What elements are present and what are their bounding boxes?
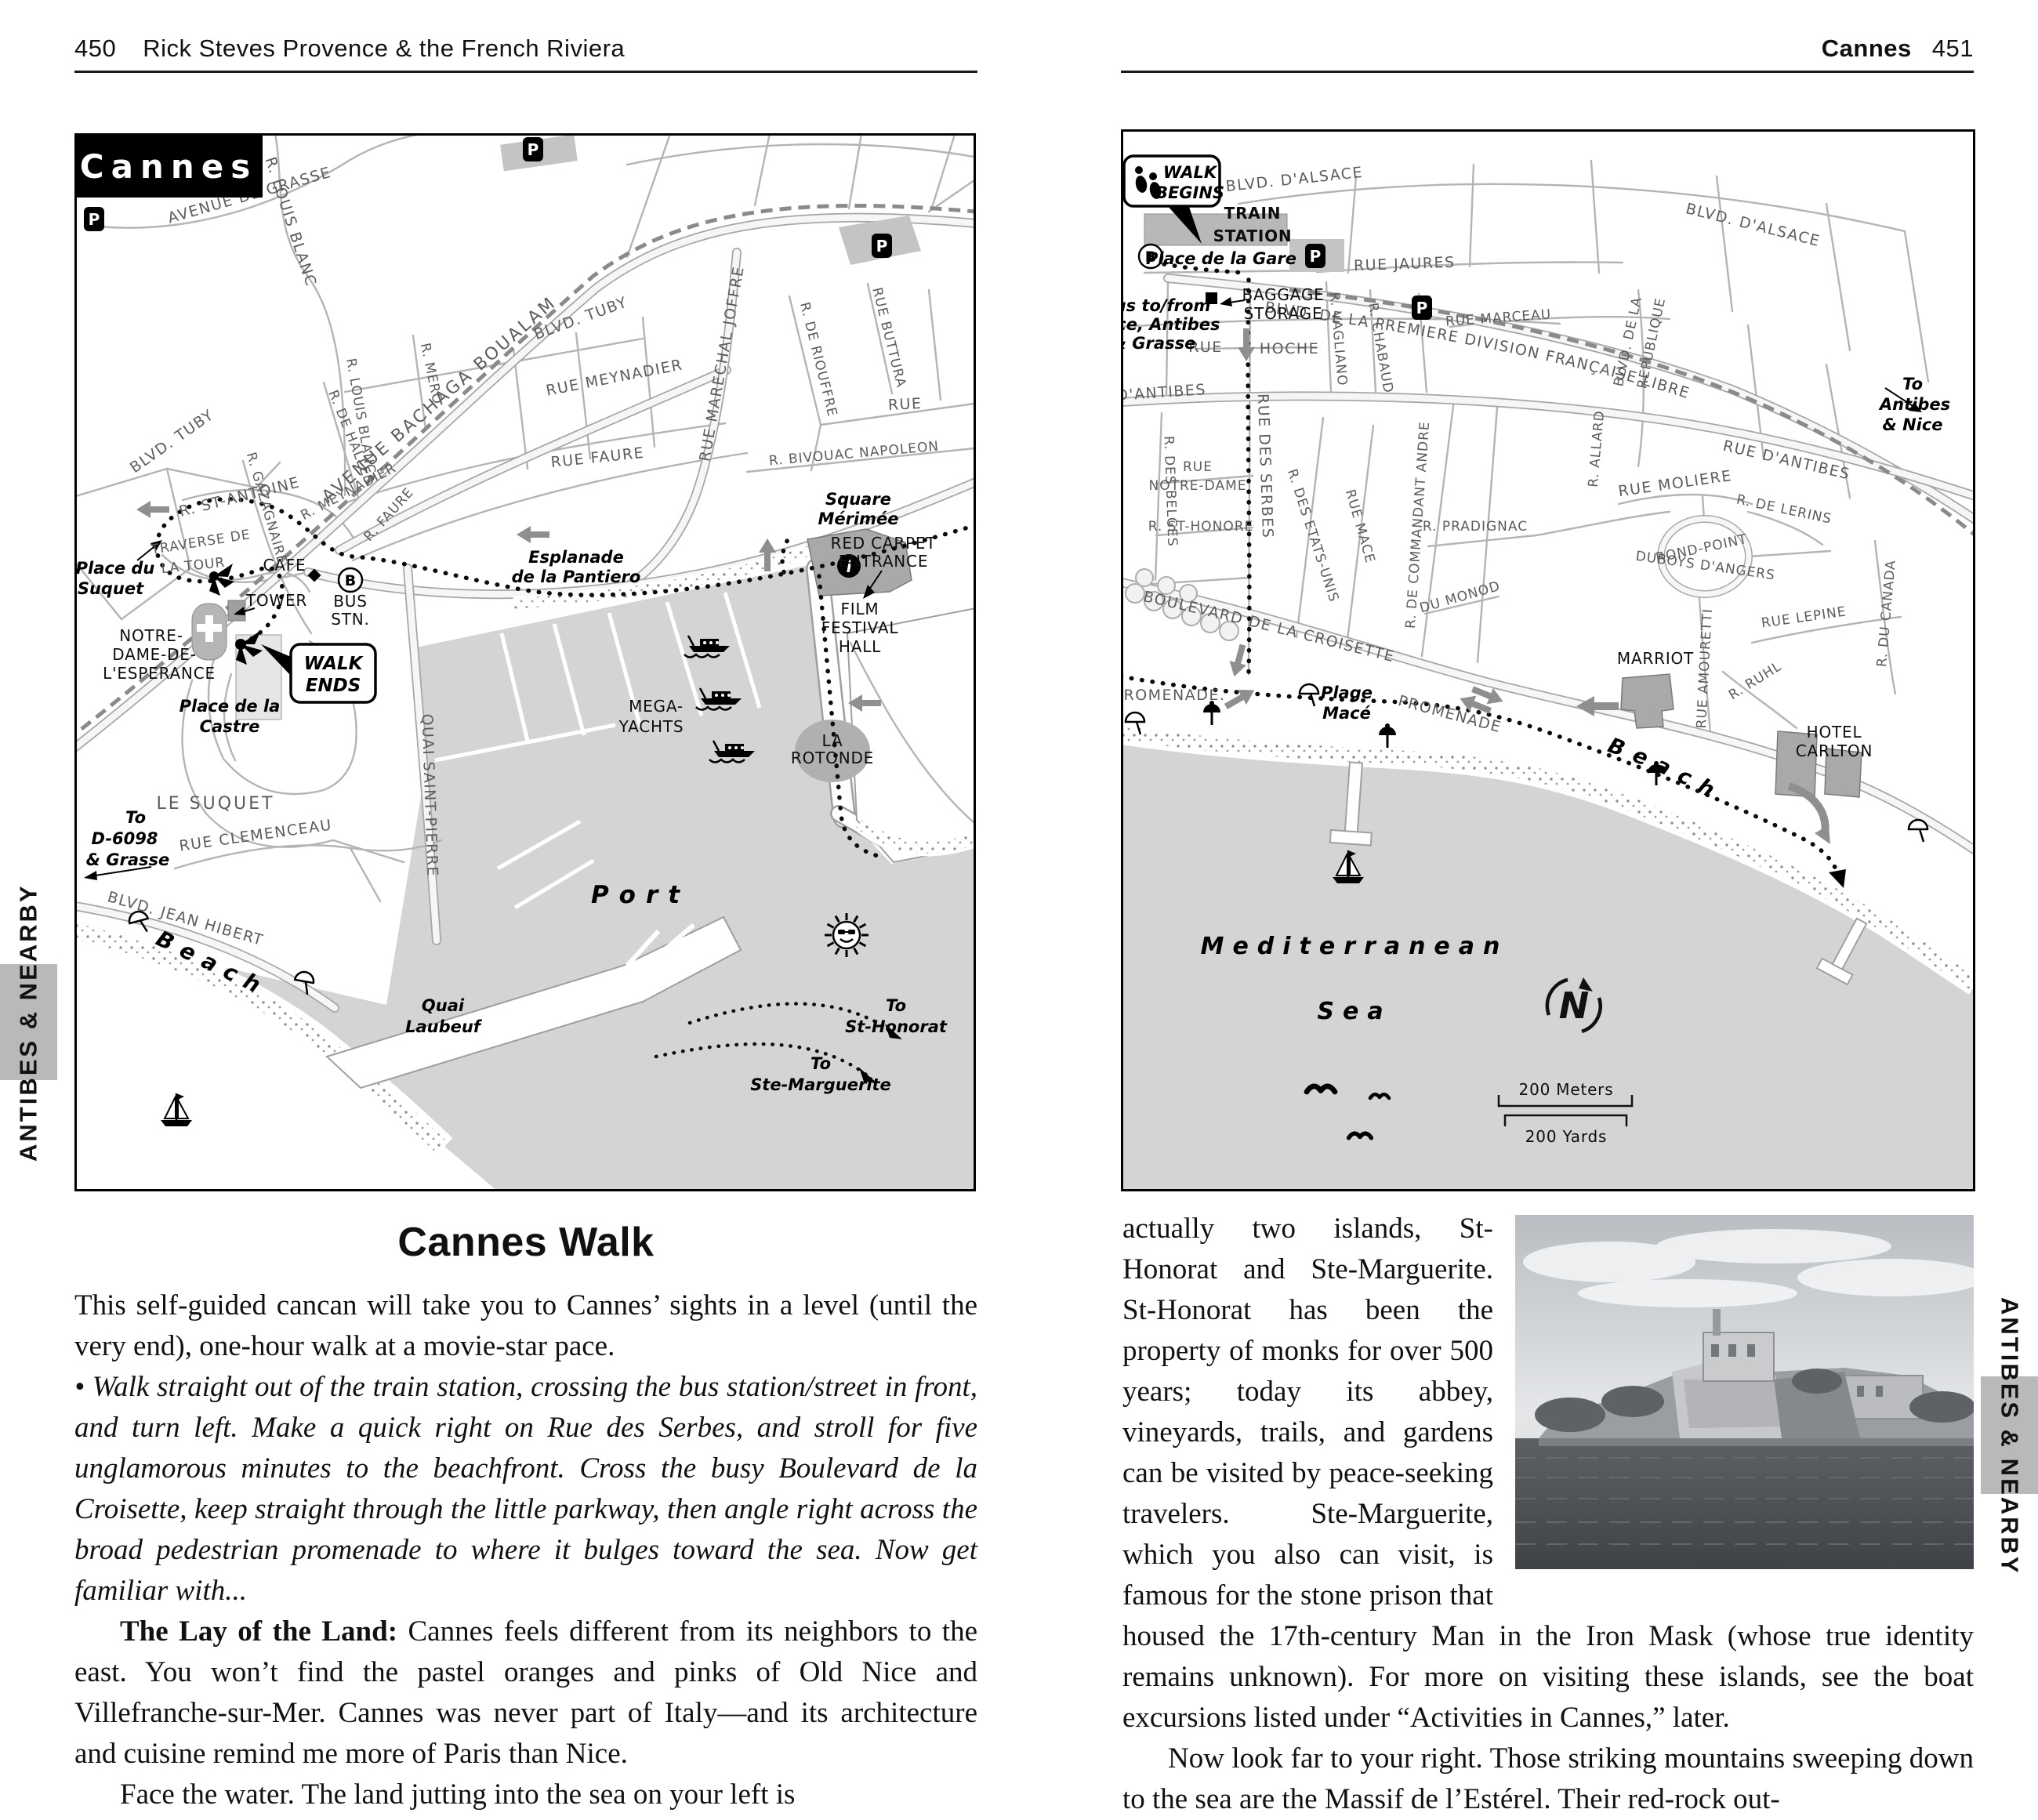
- svg-text:R. ST-HONORE: R. ST-HONORE: [1148, 519, 1254, 535]
- cannes-walk-map: WALK BEGINS B P P: [1121, 129, 1975, 1191]
- parking-icon: P: [1310, 247, 1322, 266]
- parking-icon: P: [528, 140, 539, 159]
- svg-text:Suquet: Suquet: [78, 579, 144, 598]
- svg-text:Place de la: Place de la: [180, 697, 281, 716]
- svg-text:BLVD. TUBY: BLVD. TUBY: [127, 406, 217, 477]
- svg-text:Quai: Quai: [422, 996, 465, 1015]
- svg-text:Castre: Castre: [200, 717, 260, 736]
- article-left-column: Cannes Walk This self-guided cancan will…: [74, 1220, 977, 1815]
- svg-text:TOWER: TOWER: [245, 591, 307, 610]
- svg-text:RUE JAURES: RUE JAURES: [1354, 254, 1456, 275]
- parking-icon: P: [1416, 299, 1428, 317]
- map-title-box: Cannes: [74, 133, 263, 198]
- svg-text:RUE MACE: RUE MACE: [1342, 488, 1378, 565]
- svg-text:FILM: FILM: [840, 600, 879, 618]
- svg-text:To: To: [1902, 375, 1923, 393]
- svg-text:RUE: RUE: [887, 395, 923, 414]
- svg-text:RUE DES SERBES: RUE DES SERBES: [1254, 393, 1276, 539]
- svg-text:ENTRANCE: ENTRANCE: [839, 552, 929, 571]
- svg-text:Antibes: Antibes: [1878, 395, 1950, 414]
- article-right-column: actually two islands, St-Honorat and Ste…: [1122, 1209, 1974, 1820]
- svg-text:MARRIOT: MARRIOT: [1617, 649, 1694, 668]
- svg-text:St-Honorat: St-Honorat: [845, 1017, 948, 1036]
- sailboat-icon: [161, 1093, 192, 1126]
- paragraph: Face the water. The land jutting into th…: [74, 1775, 977, 1815]
- svg-text:Place de la Gare: Place de la Gare: [1146, 249, 1296, 268]
- svg-text:HALL: HALL: [839, 637, 881, 656]
- svg-text:RED CARPET: RED CARPET: [831, 534, 937, 553]
- svg-text:STORAGE: STORAGE: [1244, 304, 1323, 323]
- svg-text:NOTRE-: NOTRE-: [119, 626, 183, 645]
- svg-text:Nice, Antibes: Nice, Antibes: [1121, 315, 1220, 334]
- edge-tab-right: ANTIBES & NEARBY: [1981, 1305, 2038, 1568]
- svg-text:MEGA-: MEGA-: [629, 697, 684, 716]
- svg-text:R. DU CANADA: R. DU CANADA: [1874, 559, 1899, 667]
- svg-text:RUE BUTTURA: RUE BUTTURA: [869, 286, 908, 390]
- svg-text:LA: LA: [822, 731, 843, 750]
- svg-text:& Nice: & Nice: [1882, 415, 1942, 434]
- svg-text:To: To: [886, 996, 906, 1015]
- svg-text:Laubeuf: Laubeuf: [405, 1017, 483, 1036]
- svg-text:Ste-Marguerite: Ste-Marguerite: [750, 1075, 891, 1094]
- svg-text:WALK: WALK: [1163, 163, 1218, 182]
- svg-text:R. PRADIGNAC: R. PRADIGNAC: [1423, 519, 1528, 535]
- book-title: Rick Steves Provence & the French Rivier…: [143, 34, 625, 63]
- svg-text:& Grasse: & Grasse: [1121, 334, 1195, 353]
- svg-text:NOTRE-DAME: NOTRE-DAME: [1149, 478, 1247, 494]
- page-number-right: 451: [1932, 34, 1974, 63]
- svg-text:YACHTS: YACHTS: [618, 717, 684, 736]
- edge-tab-left: ANTIBES & NEARBY: [0, 894, 57, 1152]
- svg-text:L'ESPERANCE: L'ESPERANCE: [103, 664, 216, 683]
- svg-text:RUE: RUE: [1183, 459, 1213, 475]
- svg-text:Mérimée: Mérimée: [818, 509, 898, 528]
- st-honorat-photo-illustration: [1515, 1215, 1974, 1569]
- svg-text:TRAIN: TRAIN: [1224, 204, 1282, 223]
- page-number-left: 450: [74, 34, 116, 63]
- paragraph-lead: The Lay of the Land:: [120, 1615, 397, 1648]
- walk-directions-paragraph: • Walk straight out of the train station…: [74, 1367, 977, 1612]
- svg-text:BEGINS: BEGINS: [1155, 183, 1224, 202]
- baggage-marker: [1206, 292, 1245, 306]
- island-photo: [1515, 1215, 1974, 1569]
- compass-north-label: N: [1559, 984, 1590, 1027]
- svg-text:CARLTON: CARLTON: [1796, 741, 1873, 760]
- section-heading: Cannes Walk: [74, 1220, 977, 1265]
- svg-text:Port: Port: [591, 881, 690, 909]
- svg-text:D-6098: D-6098: [92, 829, 158, 848]
- bus-stop-icon: B: [345, 572, 356, 589]
- parking-icon: P: [876, 237, 888, 256]
- svg-text:STATION: STATION: [1213, 227, 1293, 245]
- svg-text:R. DE LERINS: R. DE LERINS: [1735, 491, 1833, 527]
- svg-text:R. DE RIOUFFRE: R. DE RIOUFFRE: [796, 301, 840, 419]
- map-title: Cannes: [80, 147, 257, 186]
- svg-text:RUE AMOURETTI: RUE AMOURETTI: [1694, 608, 1716, 729]
- svg-text:de la Pantiero: de la Pantiero: [512, 567, 641, 586]
- svg-text:LE SUQUET: LE SUQUET: [157, 794, 275, 814]
- svg-text:ROTONDE: ROTONDE: [791, 749, 874, 767]
- svg-text:BUS: BUS: [333, 592, 367, 611]
- svg-text:& Grasse: & Grasse: [86, 850, 170, 869]
- svg-text:DAME-DE-: DAME-DE-: [112, 645, 197, 664]
- svg-text:HOTEL: HOTEL: [1807, 723, 1862, 741]
- svg-text:BLVD. D'ALSACE: BLVD. D'ALSACE: [1684, 200, 1822, 250]
- svg-text:Plage: Plage: [1321, 683, 1373, 702]
- svg-text:R. ALLARD: R. ALLARD: [1586, 410, 1608, 488]
- svg-text:R. DES ETATS-UNIS: R. DES ETATS-UNIS: [1284, 467, 1342, 604]
- svg-text:200 Meters: 200 Meters: [1519, 1080, 1614, 1099]
- svg-text:TRAVERSE DE: TRAVERSE DE: [149, 527, 252, 558]
- svg-text:CAFE: CAFE: [263, 556, 306, 575]
- svg-text:R. GAZAGNAIRE: R. GAZAGNAIRE: [243, 451, 290, 567]
- svg-text:Esplanade: Esplanade: [528, 548, 624, 567]
- svg-text:Macé: Macé: [1322, 704, 1371, 723]
- svg-text:200 Yards: 200 Yards: [1525, 1127, 1607, 1146]
- svg-text:HOCHE: HOCHE: [1260, 340, 1319, 357]
- svg-text:Sea: Sea: [1317, 998, 1391, 1025]
- svg-text:R. CHABAUD: R. CHABAUD: [1365, 302, 1396, 395]
- svg-text:Place du: Place du: [76, 559, 155, 578]
- svg-text:To: To: [125, 808, 146, 827]
- svg-text:STN.: STN.: [331, 610, 369, 629]
- svg-text:Square: Square: [825, 490, 891, 509]
- svg-text:R. BIVOUAC NAPOLEON: R. BIVOUAC NAPOLEON: [768, 439, 940, 470]
- svg-text:Mediterranean: Mediterranean: [1201, 933, 1509, 960]
- svg-text:FESTIVAL: FESTIVAL: [821, 618, 899, 637]
- walk-ends-label: WALK: [304, 654, 364, 674]
- page-header-left: 450 Rick Steves Provence & the French Ri…: [74, 34, 977, 73]
- parking-icon: P: [89, 210, 100, 229]
- chapter-title: Cannes: [1822, 34, 1912, 63]
- lay-of-the-land-paragraph: The Lay of the Land: Cannes feels differ…: [74, 1612, 977, 1775]
- mediterranean-sea: [1121, 737, 1975, 1191]
- esterel-paragraph: Now look far to your right. Those striki…: [1122, 1738, 1974, 1820]
- svg-text:RUE MARECHAL JOFFRE: RUE MARECHAL JOFFRE: [696, 264, 748, 462]
- page-header-right: Cannes 451: [1121, 34, 1974, 73]
- cannes-overview-map: WALK ENDS P P P B: [74, 133, 976, 1191]
- paragraph: This self-guided cancan will take you to…: [74, 1285, 977, 1367]
- svg-text:BAGGAGE: BAGGAGE: [1242, 285, 1324, 304]
- bus-stop-badge: B: [339, 568, 362, 592]
- svg-text:ENDS: ENDS: [306, 676, 361, 696]
- svg-text:PROMENADE.: PROMENADE.: [1121, 687, 1225, 704]
- svg-text:To: To: [810, 1054, 831, 1073]
- svg-text:Bus to/from: Bus to/from: [1121, 296, 1210, 315]
